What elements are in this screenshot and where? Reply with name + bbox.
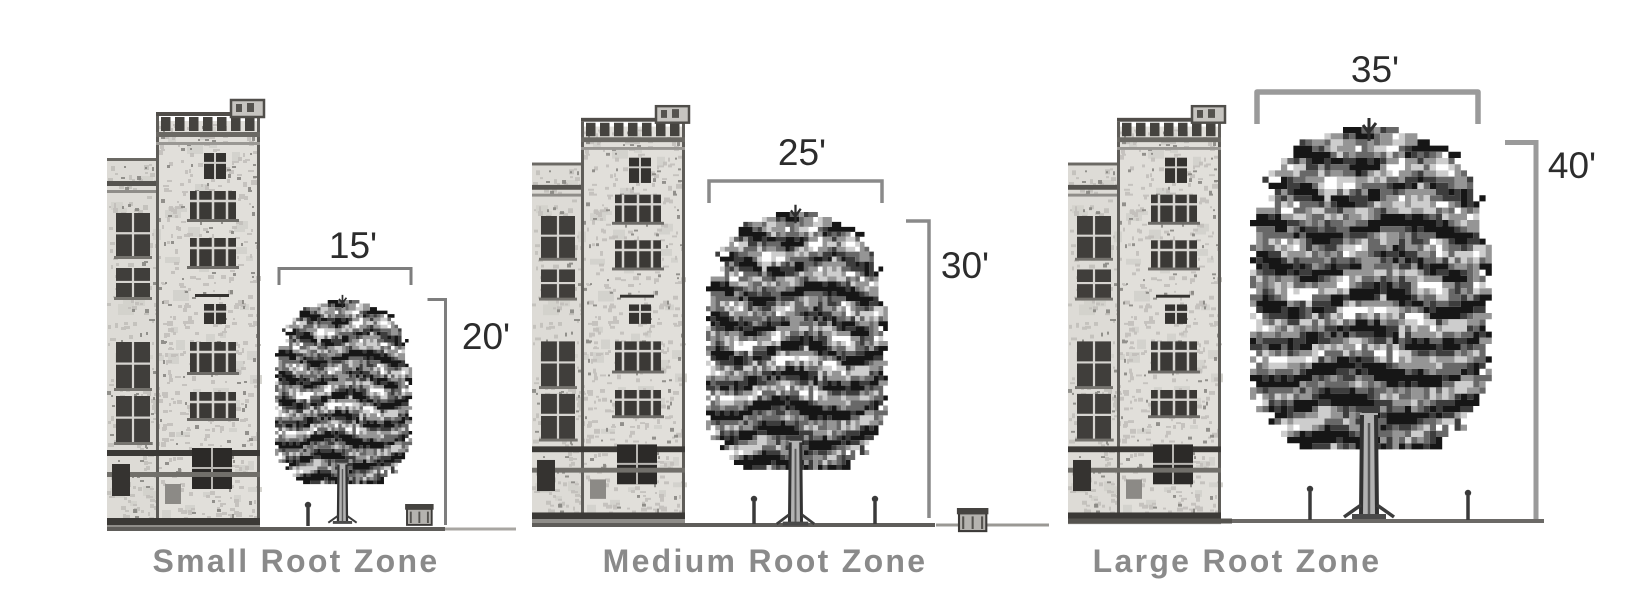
- svg-text:35': 35': [1351, 49, 1399, 90]
- svg-text:20': 20': [462, 316, 510, 357]
- svg-text:Small Root Zone: Small Root Zone: [153, 543, 440, 579]
- svg-text:25': 25': [778, 132, 826, 173]
- svg-text:40': 40': [1548, 145, 1596, 186]
- svg-text:30': 30': [941, 245, 989, 286]
- svg-text:Large Root Zone: Large Root Zone: [1093, 543, 1382, 579]
- svg-text:15': 15': [329, 225, 377, 266]
- svg-text:Medium Root Zone: Medium Root Zone: [603, 543, 928, 579]
